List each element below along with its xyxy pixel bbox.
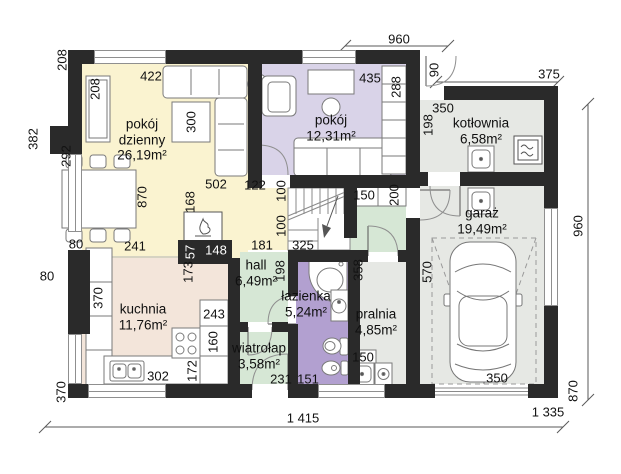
dim-bottom-1335: 1 335 — [532, 406, 565, 419]
window — [94, 50, 166, 64]
dim-living-300: 300 — [185, 111, 198, 133]
dim-left-208: 208 — [56, 49, 69, 71]
dim-bedroom-288: 288 — [390, 76, 403, 98]
wall-segment — [356, 50, 420, 64]
window — [544, 208, 558, 306]
dim-kitchen-302: 302 — [147, 370, 169, 383]
dim-opening-325: 325 — [292, 239, 314, 252]
wall-segment — [544, 306, 558, 398]
dim-wall-148: 148 — [205, 244, 227, 257]
wall-segment — [272, 322, 288, 332]
wall-segment — [544, 100, 558, 208]
dim-top-960: 960 — [388, 33, 410, 46]
washing-machine — [375, 363, 392, 385]
room-label-vestibule: wiatrołap3,58m² — [232, 340, 286, 371]
room-label-boiler: kotłownia6,58m² — [453, 115, 509, 146]
wall-segment — [398, 250, 406, 262]
wall-segment — [68, 50, 94, 64]
wall-segment — [444, 86, 558, 100]
dim-living-422: 422 — [140, 70, 162, 83]
dim-living-502: 502 — [205, 178, 227, 191]
wall-segment — [406, 64, 420, 188]
room-label-living: pokój dzienny26,19m² — [103, 117, 181, 164]
wall-segment — [460, 172, 558, 186]
window — [88, 384, 166, 398]
dim-kitchen-160: 160 — [207, 331, 220, 353]
dim-living-168: 168 — [184, 191, 197, 213]
dim-vestibule-231: 231 — [270, 373, 292, 386]
boiler-icon — [514, 136, 542, 164]
dim-living-100b: 100 — [275, 215, 288, 237]
dim-living-208: 208 — [89, 78, 102, 100]
dim-living-241: 241 — [124, 240, 146, 253]
wall-segment — [420, 172, 428, 186]
door-laundry — [368, 226, 398, 256]
window — [318, 384, 385, 398]
armchair — [262, 76, 296, 116]
room-label-laundry: pralnia4,85m² — [355, 306, 397, 337]
fireplace — [184, 212, 222, 242]
window — [302, 50, 356, 64]
dim-garage-570: 570 — [421, 261, 434, 283]
wall-segment — [406, 218, 420, 398]
dim-laundry-358: 358 — [352, 259, 365, 281]
dim-kitchen-173: 173 — [182, 261, 195, 283]
door-bedroom — [258, 145, 288, 175]
dim-garage-350: 350 — [486, 372, 508, 385]
bidet — [322, 361, 348, 375]
wall-segment — [166, 384, 252, 398]
dim-cabinet-150: 150 — [353, 189, 375, 202]
dim-left-382: 382 — [27, 128, 40, 150]
dim-right-960: 960 — [572, 215, 585, 237]
dim-living-80: 80 — [69, 238, 83, 251]
dim-left-370: 370 — [55, 381, 68, 403]
dim-opening-181: 181 — [251, 239, 273, 252]
toilet — [323, 338, 348, 355]
room-label-kitchen: kuchnia11,76m² — [119, 301, 168, 332]
dim-bath-151: 151 — [297, 373, 319, 386]
dim-living-870: 870 — [136, 186, 149, 208]
dim-bottom-1415: 1 415 — [287, 412, 320, 425]
room-label-garage: garaż19,49m² — [457, 205, 507, 236]
dim-door-90: 90 — [428, 63, 441, 77]
car — [444, 242, 522, 382]
room-label-bedroom: pokój12,31m² — [306, 112, 356, 143]
window — [68, 334, 82, 384]
dim-boiler-375: 375 — [538, 68, 560, 81]
kitchen-sink — [110, 361, 144, 381]
floor-plan: pokój dzienny26,19m² pokój12,31m² kotłow… — [0, 0, 621, 474]
wall-segment — [68, 250, 90, 334]
dim-wall-57: 57 — [184, 245, 197, 259]
dim-kitchen-243: 243 — [203, 308, 225, 321]
room-label-hall: hall6,49m² — [235, 257, 277, 288]
dim-kitchen-370: 370 — [92, 287, 105, 309]
dim-laundry-150: 150 — [352, 351, 374, 364]
room-label-bath: łazienka5,24m² — [281, 288, 331, 319]
dim-bedroom-435: 435 — [359, 72, 381, 85]
dim-hall-198: 198 — [274, 260, 287, 282]
sofa-bedroom — [294, 138, 392, 176]
dim-living-122: 122 — [244, 179, 266, 192]
dim-boiler-350: 350 — [432, 102, 454, 115]
utility-sink-boiler — [468, 146, 494, 172]
wall-segment — [240, 322, 248, 332]
bathroom-sink — [331, 290, 348, 321]
wall-segment — [248, 64, 262, 188]
dim-kitchen-172: 172 — [186, 360, 199, 382]
dim-right-870: 870 — [567, 380, 580, 402]
stove — [172, 328, 200, 358]
dim-left-80: 80 — [40, 270, 54, 283]
dim-living-100a: 100 — [275, 180, 288, 202]
dim-cabinet-200: 200 — [388, 184, 401, 206]
garage-door — [435, 388, 528, 395]
dim-living-292: 292 — [60, 145, 73, 167]
wall-segment — [166, 50, 302, 64]
wall-segment — [68, 384, 88, 398]
desk — [308, 70, 354, 94]
dim-boiler-198: 198 — [422, 114, 435, 136]
